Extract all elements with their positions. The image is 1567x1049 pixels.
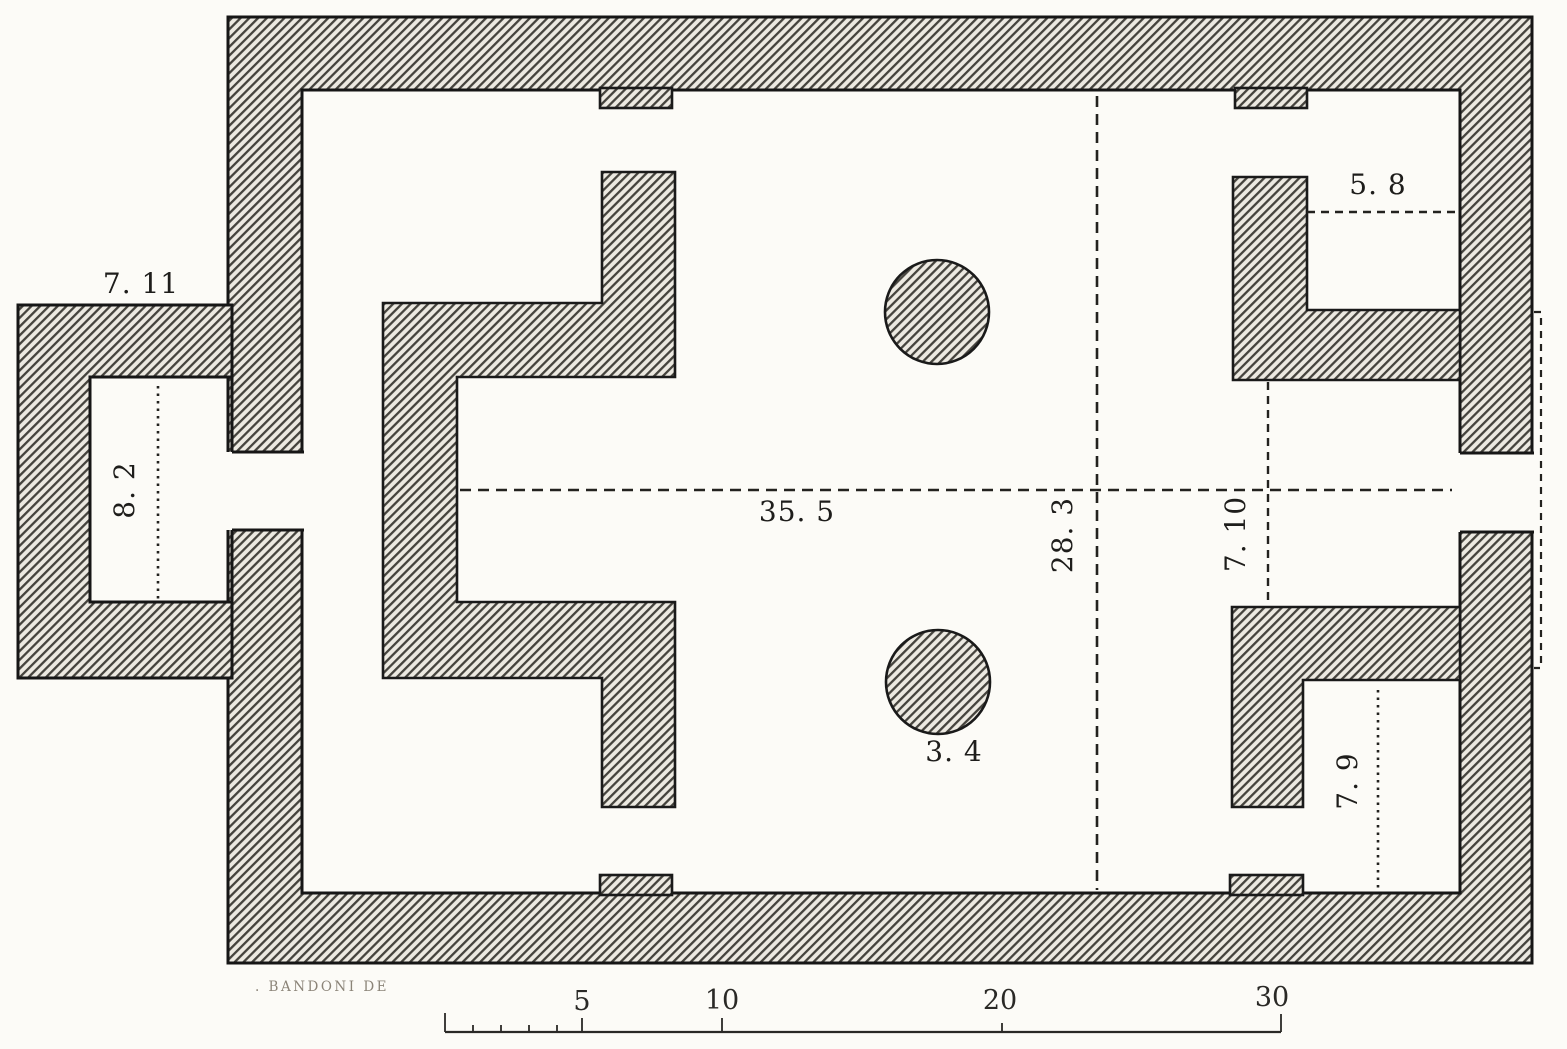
east-doorway <box>1456 453 1540 532</box>
label-northeast-room: 5. 8 <box>1349 168 1406 201</box>
pilaster-north-east <box>1235 88 1307 108</box>
floor-plan: 7. 11 8. 2 35. 5 28. 3 7. 10 5. 8 7. 9 3… <box>0 0 1567 1049</box>
pilaster-north-west <box>600 88 672 108</box>
label-annex-width: 7. 11 <box>103 267 179 300</box>
scale-label-10: 10 <box>705 985 739 1016</box>
engraver-credit: . BANDONI DE <box>255 979 389 995</box>
label-southeast-room: 7. 9 <box>1331 752 1364 809</box>
northeast-chamber-wall <box>1233 177 1460 380</box>
scale-bar: 5 10 20 30 <box>445 982 1289 1032</box>
label-nave-length: 35. 5 <box>759 495 835 528</box>
pilaster-south-east <box>1230 875 1303 895</box>
label-east-bay: 7. 10 <box>1219 496 1252 572</box>
column-south <box>886 630 990 734</box>
label-nave-width: 28. 3 <box>1046 497 1079 573</box>
column-north <box>885 260 989 364</box>
label-column: 3. 4 <box>925 735 982 768</box>
west-doorway <box>180 452 306 530</box>
engraving-page: 7. 11 8. 2 35. 5 28. 3 7. 10 5. 8 7. 9 3… <box>0 0 1567 1049</box>
label-annex-room: 8. 2 <box>108 461 141 518</box>
pilasters <box>600 88 1307 895</box>
scale-label-20: 20 <box>983 985 1017 1016</box>
scale-label-30: 30 <box>1255 982 1289 1013</box>
pilaster-south-west <box>600 875 672 895</box>
scale-label-5: 5 <box>573 986 590 1017</box>
scale-bar-ticks <box>445 1013 1281 1032</box>
